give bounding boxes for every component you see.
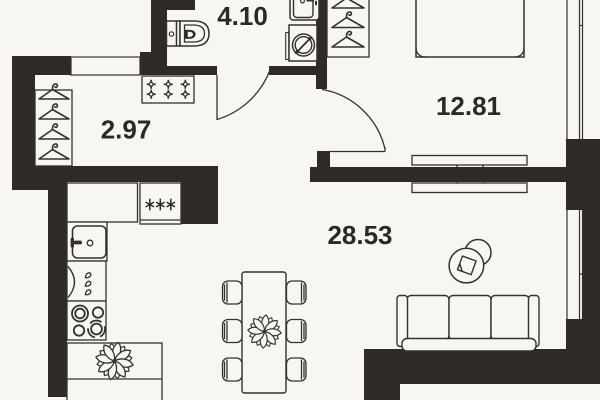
svg-text:28.53: 28.53 [327, 220, 392, 250]
svg-text:4.10: 4.10 [217, 1, 268, 31]
svg-text:2.97: 2.97 [101, 115, 152, 145]
svg-text:12.81: 12.81 [436, 91, 501, 121]
